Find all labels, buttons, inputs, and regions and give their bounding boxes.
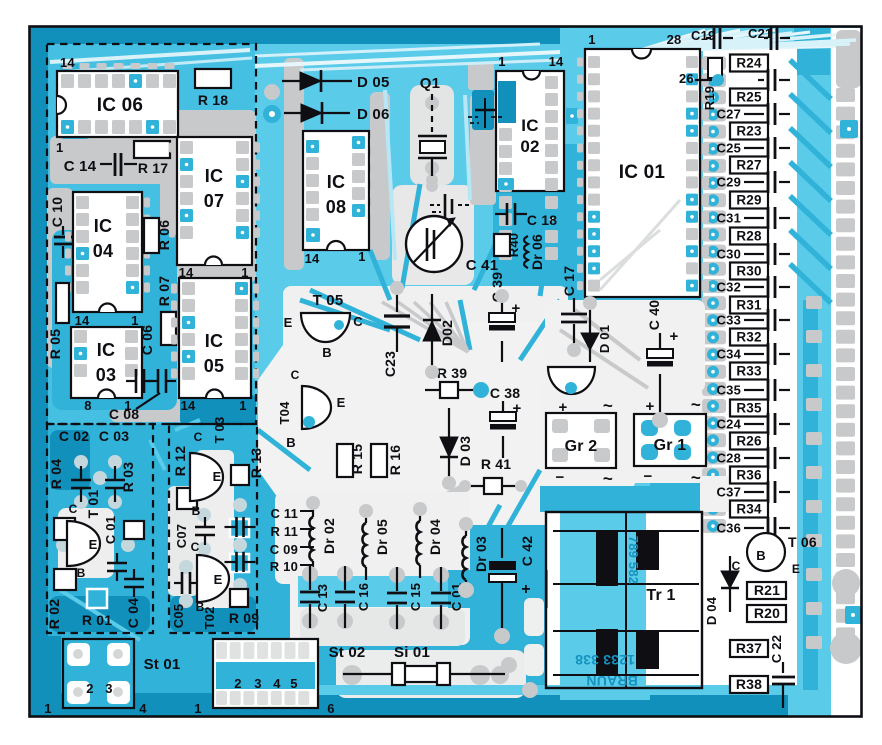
- svg-text:05: 05: [204, 356, 224, 376]
- svg-text:C 14: C 14: [64, 158, 97, 175]
- svg-text:C: C: [194, 430, 203, 444]
- svg-text:R35: R35: [736, 401, 762, 416]
- svg-text:C29: C29: [717, 175, 741, 190]
- svg-text:IC: IC: [94, 216, 112, 236]
- svg-text:14: 14: [305, 251, 320, 266]
- svg-text:04: 04: [93, 241, 113, 261]
- svg-text:C 09: C 09: [270, 542, 298, 557]
- svg-text:Dr 03: Dr 03: [473, 536, 489, 572]
- svg-text:3: 3: [254, 676, 261, 691]
- svg-text:C24: C24: [717, 417, 742, 432]
- svg-text:D 06: D 06: [357, 106, 390, 123]
- svg-text:R31: R31: [736, 298, 762, 313]
- svg-text:C: C: [291, 368, 300, 382]
- svg-text:C 41: C 41: [466, 257, 499, 274]
- svg-text:Dr 04: Dr 04: [427, 519, 443, 555]
- svg-text:+: +: [521, 581, 531, 598]
- svg-text:C07: C07: [174, 524, 189, 548]
- svg-text:R 16: R 16: [387, 445, 403, 475]
- svg-text:R34: R34: [736, 502, 762, 517]
- svg-text:26: 26: [679, 71, 694, 86]
- svg-text:−: −: [644, 468, 653, 485]
- svg-text:C36: C36: [717, 521, 741, 536]
- svg-text:IC: IC: [521, 116, 538, 135]
- svg-text:1: 1: [194, 701, 201, 716]
- svg-text:14: 14: [75, 313, 90, 328]
- svg-text:St 01: St 01: [144, 656, 181, 673]
- svg-text:R 04: R 04: [48, 459, 64, 489]
- svg-text:C: C: [69, 502, 78, 516]
- svg-text:+: +: [670, 328, 679, 345]
- svg-text:R32: R32: [736, 330, 761, 345]
- svg-text:Gr 1: Gr 1: [654, 437, 687, 454]
- svg-text:BRAUN: BRAUN: [586, 673, 638, 689]
- svg-text:IC 01: IC 01: [619, 162, 666, 183]
- svg-text:R27: R27: [736, 158, 761, 173]
- svg-text:C: C: [353, 314, 363, 329]
- svg-text:~: ~: [603, 396, 613, 415]
- svg-text:2: 2: [86, 681, 93, 696]
- svg-text:C 08: C 08: [109, 406, 139, 422]
- svg-text:D 05: D 05: [357, 74, 390, 91]
- svg-text:14: 14: [549, 54, 564, 69]
- svg-text:C: C: [191, 540, 200, 554]
- svg-text:Dr 02: Dr 02: [321, 518, 337, 554]
- svg-text:C 22: C 22: [769, 635, 784, 663]
- svg-text:+: +: [646, 398, 655, 415]
- svg-text:R30: R30: [736, 264, 761, 279]
- svg-text:2: 2: [234, 676, 241, 691]
- svg-text:R28: R28: [736, 229, 762, 244]
- svg-text:03: 03: [96, 365, 116, 385]
- svg-text:R26: R26: [736, 434, 762, 449]
- svg-text:~: ~: [691, 395, 701, 414]
- svg-text:Gr 2: Gr 2: [565, 438, 598, 455]
- svg-text:C 42: C 42: [519, 536, 535, 566]
- svg-text:14: 14: [60, 55, 75, 70]
- svg-text:R 03: R 03: [120, 462, 136, 492]
- svg-text:T 01: T 01: [85, 490, 101, 519]
- svg-text:IC: IC: [97, 340, 115, 360]
- svg-text:B: B: [192, 504, 201, 518]
- svg-text:R38: R38: [736, 676, 762, 692]
- svg-text:1: 1: [358, 249, 365, 264]
- svg-text:E: E: [337, 395, 346, 410]
- svg-text:IC 06: IC 06: [97, 95, 143, 116]
- svg-text:C33: C33: [717, 313, 741, 328]
- svg-text:R 10: R 10: [270, 559, 298, 574]
- svg-text:C35: C35: [717, 383, 741, 398]
- svg-text:T 03: T 03: [212, 417, 227, 444]
- svg-text:~: ~: [691, 468, 701, 487]
- svg-text:IC: IC: [205, 166, 223, 186]
- svg-text:C 38: C 38: [490, 385, 520, 401]
- svg-text:C 13: C 13: [315, 584, 330, 612]
- svg-text:C28: C28: [717, 451, 741, 466]
- svg-text:C 10: C 10: [49, 197, 65, 227]
- svg-text:C 17: C 17: [561, 266, 577, 296]
- svg-text:B: B: [322, 345, 332, 360]
- svg-text:6: 6: [327, 701, 334, 716]
- svg-text:E: E: [214, 572, 223, 587]
- svg-text:R36: R36: [736, 468, 762, 483]
- svg-text:R25: R25: [736, 90, 762, 105]
- svg-text:C37: C37: [717, 485, 741, 500]
- svg-text:T 05: T 05: [313, 292, 344, 309]
- svg-text:C21: C21: [748, 26, 772, 41]
- svg-text:R23: R23: [736, 124, 762, 139]
- svg-text:D 03: D 03: [457, 436, 473, 466]
- svg-text:Q1: Q1: [420, 75, 440, 92]
- svg-text:C30: C30: [717, 247, 741, 262]
- svg-text:1: 1: [44, 701, 51, 716]
- svg-text:C25: C25: [717, 141, 741, 156]
- svg-text:−: −: [556, 469, 565, 486]
- svg-text:08: 08: [326, 197, 346, 217]
- svg-text:T 06: T 06: [788, 534, 817, 550]
- svg-text:IC: IC: [205, 331, 223, 351]
- svg-text:R 41: R 41: [481, 456, 511, 472]
- svg-text:C34: C34: [717, 347, 742, 362]
- svg-text:E: E: [213, 469, 222, 484]
- svg-text:3: 3: [105, 681, 112, 696]
- svg-text:D 04: D 04: [704, 596, 719, 625]
- svg-text:T04: T04: [277, 401, 292, 425]
- svg-text:R33: R33: [736, 364, 762, 379]
- svg-text:14: 14: [181, 398, 196, 413]
- svg-text:C32: C32: [717, 280, 741, 295]
- svg-text:R 11: R 11: [270, 524, 298, 539]
- svg-text:R 17: R 17: [138, 160, 168, 176]
- svg-text:R29: R29: [736, 193, 761, 208]
- svg-text:T02: T02: [202, 606, 217, 629]
- svg-text:789 582: 789 582: [626, 536, 641, 584]
- svg-text:02: 02: [520, 137, 539, 156]
- svg-text:Si 01: Si 01: [394, 644, 430, 661]
- svg-text:R 02: R 02: [46, 599, 62, 629]
- svg-text:C 11: C 11: [270, 506, 298, 521]
- svg-text:C 15: C 15: [408, 583, 423, 611]
- svg-text:4: 4: [139, 701, 147, 716]
- svg-text:1: 1: [588, 32, 595, 47]
- svg-text:C 04: C 04: [125, 598, 141, 628]
- svg-text:~: ~: [603, 469, 613, 488]
- svg-text:1233 338: 1233 338: [575, 652, 635, 668]
- svg-text:B: B: [286, 435, 296, 450]
- svg-text:4: 4: [273, 676, 281, 691]
- svg-text:C27: C27: [717, 107, 741, 122]
- svg-text:07: 07: [204, 191, 224, 211]
- svg-text:1: 1: [498, 54, 505, 69]
- svg-text:14: 14: [179, 265, 194, 280]
- svg-text:C05: C05: [171, 604, 186, 628]
- svg-text:B: B: [756, 548, 766, 563]
- svg-text:C 01: C 01: [103, 516, 118, 544]
- svg-text:R 01: R 01: [82, 612, 112, 628]
- svg-text:R24: R24: [736, 56, 762, 71]
- svg-text:C 40: C 40: [646, 300, 662, 330]
- svg-text:R20: R20: [754, 605, 780, 621]
- svg-text:IC: IC: [327, 172, 345, 192]
- svg-text:C 16: C 16: [356, 583, 371, 611]
- svg-text:R 12: R 12: [172, 446, 188, 476]
- svg-text:D02: D02: [439, 320, 455, 346]
- svg-text:8: 8: [84, 398, 91, 413]
- svg-text:R 18: R 18: [198, 92, 228, 108]
- svg-text:C31: C31: [717, 211, 741, 226]
- svg-text:R37: R37: [736, 640, 762, 656]
- svg-text:R 05: R 05: [47, 329, 63, 359]
- svg-text:R 15: R 15: [349, 444, 365, 474]
- svg-text:R 07: R 07: [156, 276, 172, 306]
- svg-text:R 13: R 13: [248, 448, 264, 478]
- svg-text:+: +: [559, 399, 568, 416]
- svg-text:C 18: C 18: [527, 212, 557, 228]
- svg-text:D 01: D 01: [597, 325, 612, 353]
- svg-text:E: E: [89, 537, 98, 552]
- svg-text:E: E: [792, 562, 800, 576]
- svg-text:1: 1: [239, 398, 246, 413]
- svg-text:C19: C19: [691, 28, 715, 43]
- svg-text:E: E: [284, 315, 293, 330]
- svg-text:Tr 1: Tr 1: [646, 587, 675, 604]
- svg-text:B: B: [77, 566, 86, 580]
- svg-text:R21: R21: [754, 582, 780, 598]
- svg-text:R40: R40: [506, 233, 521, 257]
- svg-text:1: 1: [131, 313, 138, 328]
- svg-text:St 02: St 02: [329, 644, 366, 661]
- svg-text:Dr 06: Dr 06: [529, 234, 545, 270]
- svg-text:R 09: R 09: [229, 610, 259, 626]
- svg-text:R 39: R 39: [437, 365, 467, 381]
- svg-text:R19: R19: [702, 86, 717, 110]
- svg-text:1: 1: [56, 140, 63, 155]
- svg-text:C 02: C 02: [59, 428, 89, 444]
- svg-text:Dr 05: Dr 05: [374, 519, 390, 555]
- svg-text:1: 1: [241, 265, 248, 280]
- svg-text:C23: C23: [382, 351, 398, 377]
- svg-text:28: 28: [667, 32, 682, 47]
- svg-text:5: 5: [290, 676, 297, 691]
- svg-text:C 06: C 06: [139, 325, 155, 355]
- svg-text:C 03: C 03: [99, 428, 129, 444]
